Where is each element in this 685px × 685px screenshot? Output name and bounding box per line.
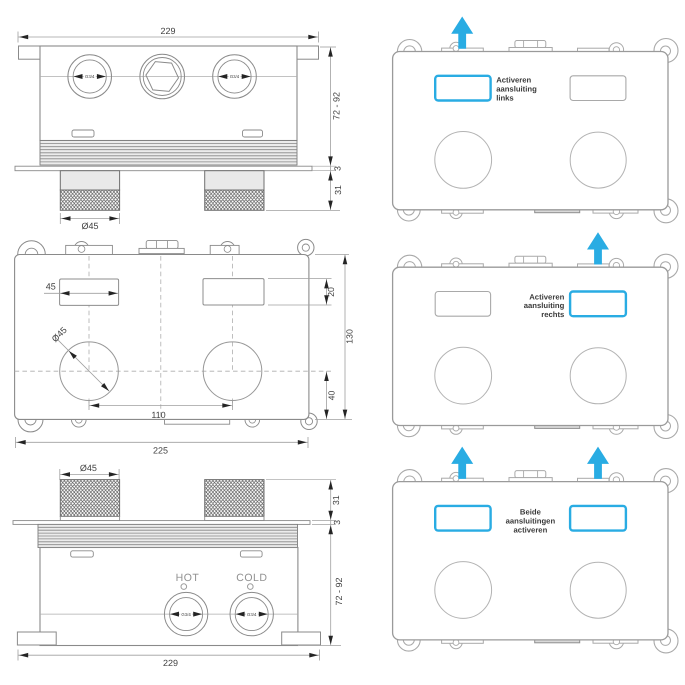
svg-text:Beide: Beide: [520, 508, 542, 517]
svg-text:aansluiting: aansluiting: [496, 85, 537, 94]
svg-text:229: 229: [160, 26, 175, 36]
svg-text:links: links: [496, 93, 514, 102]
svg-text:45: 45: [46, 282, 56, 292]
svg-text:3: 3: [333, 166, 343, 171]
svg-text:rechts: rechts: [541, 310, 564, 319]
svg-text:40: 40: [327, 391, 337, 401]
svg-text:20: 20: [326, 287, 336, 297]
svg-text:Activeren: Activeren: [496, 76, 531, 85]
svg-text:72 - 92: 72 - 92: [332, 92, 342, 120]
svg-text:aansluitingen: aansluitingen: [506, 517, 556, 526]
svg-text:COLD: COLD: [236, 572, 267, 584]
svg-text:229: 229: [163, 658, 178, 668]
svg-text:G3/4: G3/4: [85, 74, 95, 79]
svg-text:Activeren: Activeren: [529, 292, 564, 301]
svg-text:110: 110: [151, 410, 165, 420]
svg-text:3: 3: [332, 520, 342, 525]
svg-text:activeren: activeren: [514, 526, 548, 535]
svg-text:31: 31: [333, 185, 343, 195]
svg-text:HOT: HOT: [176, 572, 200, 584]
svg-text:130: 130: [345, 329, 355, 344]
svg-text:225: 225: [153, 446, 168, 456]
svg-text:aansluiting: aansluiting: [524, 301, 565, 310]
svg-text:Ø45: Ø45: [80, 463, 97, 473]
svg-text:G3/4: G3/4: [247, 612, 257, 617]
svg-text:G3/4: G3/4: [230, 74, 240, 79]
svg-text:Ø45: Ø45: [81, 221, 98, 231]
svg-text:G3/4: G3/4: [181, 612, 191, 617]
svg-text:72 - 92: 72 - 92: [334, 577, 344, 605]
svg-text:31: 31: [331, 495, 341, 505]
